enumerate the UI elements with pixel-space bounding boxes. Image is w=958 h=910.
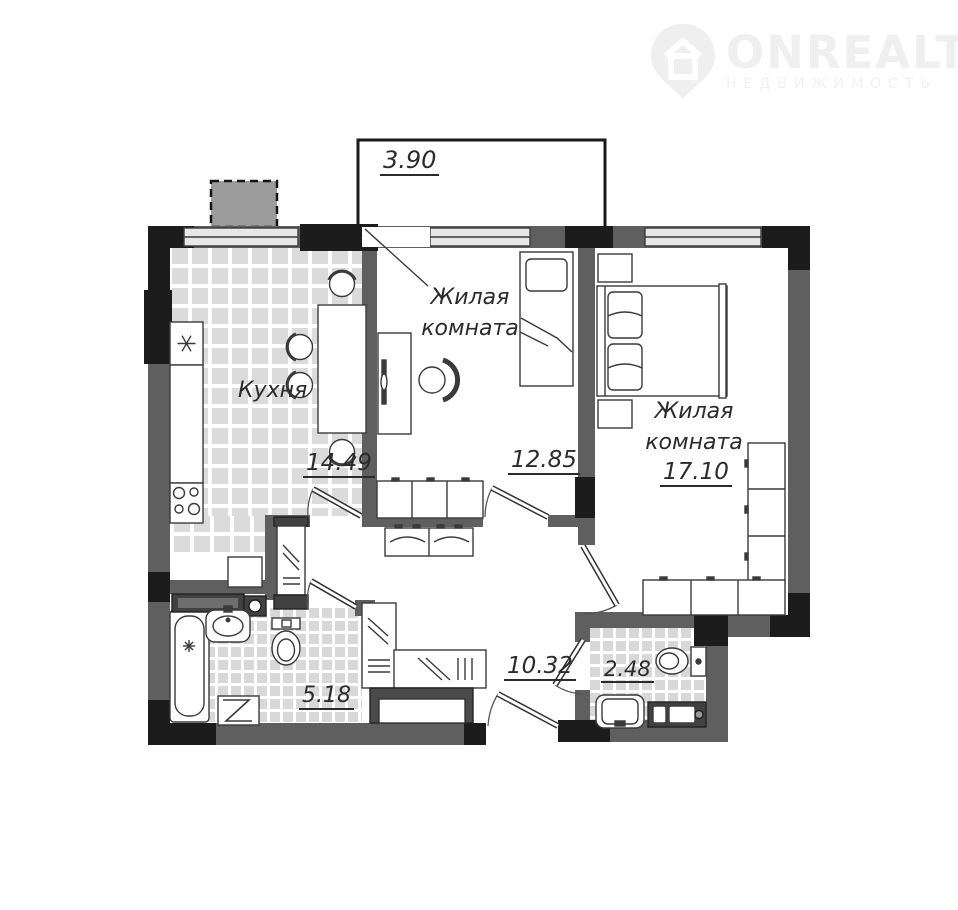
living1-name-label: Жилая комната — [416, 282, 524, 344]
bathroom-sink-icon — [206, 606, 250, 642]
floor-plan-drawing — [0, 0, 958, 910]
wardrobe-right-icon — [745, 443, 785, 583]
washing-machine-icon — [218, 696, 259, 725]
mirrored-wardrobe-tall-icon — [274, 517, 308, 609]
living2-name-line1: Жилая — [655, 399, 734, 424]
desk-icon — [378, 333, 411, 434]
kitchen-name-label: Кухня — [238, 378, 307, 403]
chair-icon — [329, 271, 355, 296]
watermark-subtitle: НЕДВИЖИМОСТЬ — [726, 76, 958, 92]
dashed-box — [211, 181, 277, 227]
bathroom-area-label: 5.18 — [299, 683, 354, 710]
kitchen-cabinet-icon — [228, 557, 262, 587]
living1-name-line1: Жилая — [431, 285, 510, 310]
nightstand-icon — [598, 400, 632, 428]
living2-name-label: Жилая комната — [639, 396, 749, 458]
brand-watermark: ONREALT НЕДВИЖИМОСТЬ — [646, 20, 958, 102]
kitchen-window — [184, 228, 298, 246]
windows — [184, 227, 761, 286]
fridge-icon — [170, 322, 203, 365]
kitchen-door-icon — [308, 489, 361, 517]
wc-toilet-icon — [656, 647, 706, 676]
entrance-door-icon — [488, 694, 558, 726]
desk-chair-icon — [419, 360, 458, 400]
onrealt-pin-icon — [646, 20, 720, 102]
bathroom-toilet-icon — [272, 618, 300, 665]
living2-door-icon — [583, 546, 617, 614]
single-bed-icon — [520, 252, 573, 386]
wardrobe-icon — [377, 478, 483, 518]
chair-icon — [287, 334, 312, 360]
hall-closet-niche-icon — [370, 688, 473, 723]
hall-wardrobe-horizontal-icon — [394, 650, 486, 688]
shoe-bench-icon — [385, 525, 473, 556]
living2-name-line2: комната — [645, 430, 743, 455]
balcony-window — [430, 228, 530, 246]
bathroom-door-icon — [307, 581, 356, 609]
nightstand-icon — [598, 254, 632, 282]
living2-area-label: 17.10 — [660, 459, 732, 487]
wc-area-label: 2.48 — [601, 657, 654, 683]
watermark-brand: ONREALT — [726, 30, 958, 76]
kitchen-counter-icon — [170, 365, 203, 483]
hall-wardrobe-vertical-icon — [362, 603, 396, 688]
living1-name-line2: комната — [421, 316, 519, 341]
living2-window — [645, 228, 761, 246]
wc-cabinet-icon — [648, 702, 706, 727]
kitchen-area-label: 14.49 — [303, 450, 375, 478]
dining-table-icon — [318, 305, 366, 433]
living1-area-label: 12.85 — [508, 447, 580, 475]
hallway-area-label: 10.32 — [504, 653, 576, 681]
double-bed-icon — [597, 284, 727, 398]
stove-icon — [170, 483, 203, 523]
page: { "watermark": { "brand": "ONREALT", "su… — [0, 0, 958, 910]
wardrobe-bottom-icon — [643, 577, 785, 615]
living1-door-icon — [485, 488, 548, 517]
balcony-area-label: 3.90 — [380, 146, 439, 176]
wc-sink-icon — [596, 695, 644, 728]
bathtub-icon — [170, 610, 209, 722]
